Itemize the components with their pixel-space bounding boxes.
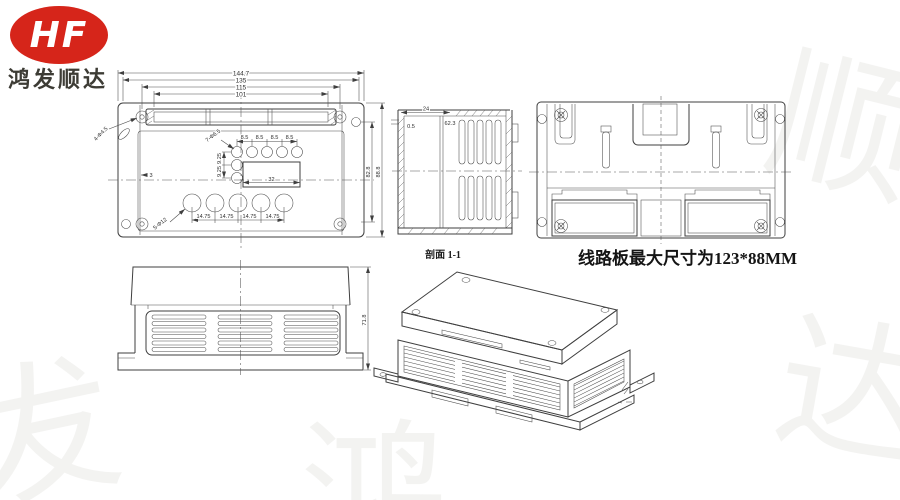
watermark-char: 发: [0, 339, 134, 500]
flange-hole: [122, 220, 131, 229]
company-name: 鸿发顺达: [8, 62, 108, 94]
pitch-label: 14.75: [197, 214, 211, 220]
overall-width-label: 144.7: [233, 70, 250, 77]
screw-head: [755, 220, 768, 233]
small-hole-pattern: [232, 147, 303, 184]
isometric-view-drawing: [374, 272, 654, 430]
side-dimensions: 82.8 88.8: [361, 103, 385, 237]
watermark-char: 顺: [752, 31, 900, 228]
top-view-drawing: 8.5 8.5 8.5 8.5 9.25 9.25 7-Φ6.5 32: [93, 70, 385, 251]
connector-width-label: 32: [268, 177, 274, 183]
slot-span-label: 101: [236, 91, 247, 98]
outer-height-label: 88.8: [376, 167, 382, 178]
pitch-label: 8.5: [241, 135, 249, 141]
screw-span-label: 115: [236, 84, 247, 91]
large-hole-pitch-dims: 14.75 14.75 14.75 14.75: [192, 207, 284, 223]
pitch-label: 14.75: [266, 214, 280, 220]
pitch-label: 8.5: [286, 135, 294, 141]
back-view-drawing: [529, 96, 793, 244]
front-height-dim: 71.8: [350, 267, 371, 370]
stacked-hole-pitch-dims: 9.25 9.25: [217, 152, 231, 178]
front-height-label: 71.8: [362, 315, 368, 326]
pitch-label: 8.5: [256, 135, 264, 141]
pitch-label: 14.75: [220, 214, 234, 220]
body-width-label: 135: [236, 77, 247, 84]
inner-height-label: 82.8: [366, 167, 372, 178]
iso-front-vents: [400, 348, 564, 412]
connector-cutout: 32: [243, 162, 300, 187]
small-hole-pitch-dims: 8.5 8.5 8.5 8.5: [237, 135, 297, 146]
brand-logo: HF: [10, 6, 108, 64]
section-view-drawing: 24 0.5 62.3 剖面 1-1: [391, 107, 522, 262]
large-hole-leader-label: 5-Φ12: [152, 217, 168, 231]
screw-head: [755, 109, 768, 122]
drawing-sheet: 顺 发 鸿 达: [0, 0, 900, 500]
pitch-label: 9.25: [217, 153, 223, 164]
section-vent-slots: [459, 120, 501, 220]
screw-head: [555, 109, 568, 122]
corner-hole-leader-label: 4-Φ4.5: [93, 126, 109, 142]
top-inset-label: 24: [423, 107, 429, 113]
cad-drawing: 顺 发 鸿 达: [0, 0, 900, 500]
watermark-char: 达: [764, 299, 900, 489]
logo-text: HF: [30, 15, 89, 56]
screw-head: [555, 220, 568, 233]
pitch-label: 14.75: [243, 214, 257, 220]
flange-hole: [352, 118, 361, 127]
wall-thickness-label: 3: [149, 173, 152, 179]
pcb-size-note: 线路板最大尺寸为123*88MM: [578, 248, 797, 268]
pitch-label: 8.5: [271, 135, 279, 141]
pitch-label: 9.25: [217, 166, 223, 177]
front-view-drawing: 71.8: [118, 260, 371, 375]
lip-label: 0.5: [407, 124, 415, 130]
watermark-char: 鸿: [300, 412, 450, 500]
front-vent-grille: [146, 311, 340, 355]
inner-depth-label: 62.3: [445, 121, 456, 127]
section-label: 剖面 1-1: [425, 248, 461, 261]
iso-side-vents: [572, 360, 626, 407]
flange-slot: [117, 127, 131, 141]
